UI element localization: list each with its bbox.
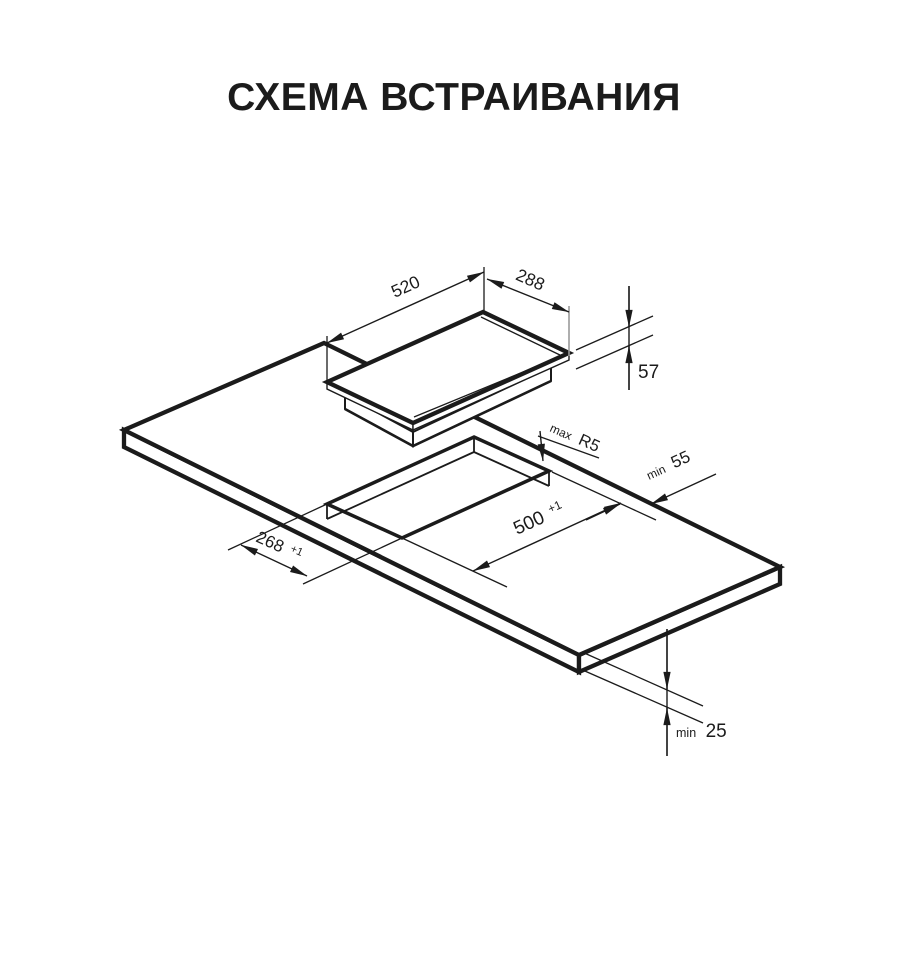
arrow-line bbox=[651, 474, 716, 504]
dim-max-prefix: max bbox=[548, 421, 574, 443]
installation-scheme-page: СХЕМА ВСТРАИВАНИЯ bbox=[0, 0, 908, 960]
installation-diagram: 520 288 57 max R5 bbox=[0, 0, 908, 960]
dim-min-prefix: min bbox=[644, 462, 667, 483]
dim-55-value: 55 bbox=[668, 447, 693, 472]
extension-line bbox=[582, 652, 703, 706]
dim-appliance-height: 57 bbox=[576, 286, 659, 390]
extension-line bbox=[576, 316, 653, 350]
dim-min-55-label: min 55 bbox=[643, 447, 693, 484]
dim-520-label: 520 bbox=[388, 271, 423, 301]
dim-57-label: 57 bbox=[638, 362, 659, 383]
dim-25-value: 25 bbox=[706, 721, 727, 742]
dim-min-prefix: min bbox=[676, 726, 696, 740]
dim-r5-value: R5 bbox=[576, 431, 603, 456]
dim-288-label: 288 bbox=[513, 264, 548, 294]
dim-max-r5-label: max R5 bbox=[547, 418, 602, 456]
dim-min-25-label: min 25 bbox=[676, 721, 727, 742]
extension-line bbox=[578, 668, 703, 723]
dim-268-tolerance: +1 bbox=[288, 543, 304, 559]
dim-268-value: 268 bbox=[253, 527, 287, 556]
